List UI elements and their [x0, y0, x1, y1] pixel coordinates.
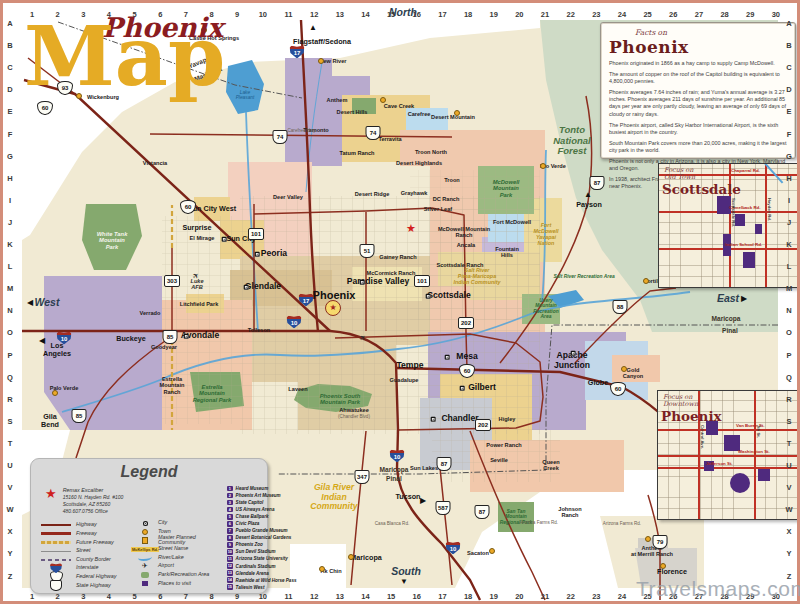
legend-line-items: HighwayFreewayFuture FreewayStreetCounty… — [41, 521, 133, 590]
legend-line-item: Future Freeway — [41, 538, 133, 547]
legend-label: Park/Recreation Area — [158, 572, 209, 578]
grid-col-label: 1 — [30, 10, 34, 19]
legend-place-item: 8Desert Botanical Gardens — [227, 534, 297, 541]
advertiser-line: 15160 N. Hayden Rd. #100 — [63, 494, 124, 501]
county-icon — [41, 559, 71, 561]
legend-label: Federal Highway — [76, 574, 116, 580]
legend-place-item: 11Arizona State University — [227, 555, 297, 562]
grid-col-label: 15 — [387, 592, 395, 601]
legend-places-list: 1Heard Museum2Phoenix Art Museum3State C… — [227, 485, 297, 591]
grid-col-label: 2 — [56, 592, 60, 601]
grid-row-label: C — [7, 63, 12, 72]
legend-place-item: 6Civic Plaza — [227, 520, 297, 527]
facts-script-heading: Facts on — [635, 28, 787, 37]
grid-row-label: L — [8, 262, 13, 271]
grid-col-label: 4 — [107, 592, 111, 601]
legend-line-item: Street — [41, 547, 133, 556]
airport-icon: ✈ — [137, 562, 153, 570]
places-icon — [137, 581, 153, 587]
grid-row-label: Q — [7, 372, 13, 381]
place-name: Rawhide at Wild Horse Pass — [236, 578, 297, 583]
grid-col-label: 20 — [515, 592, 523, 601]
legend-symbol-item: ✈Airport — [137, 562, 229, 571]
grid-col-label: 19 — [490, 592, 498, 601]
grid-row-label: L — [787, 262, 792, 271]
legend-box: Legend ★ Remax Excaliber 15160 N. Hayden… — [30, 458, 268, 594]
grid-row-label: W — [6, 505, 13, 514]
grid-col-label: 24 — [618, 10, 626, 19]
grid-row-label: F — [787, 129, 792, 138]
legend-place-item: 15Taliesin West — [227, 584, 297, 591]
grid-row-label: Y — [7, 549, 12, 558]
grid-col-label: 18 — [464, 592, 472, 601]
place-name: US Airways Arena — [236, 507, 275, 512]
place-number: 10 — [227, 549, 233, 555]
legend-label: Highway — [76, 522, 97, 528]
facts-paragraph: The amount of copper on the roof of the … — [609, 71, 787, 86]
advertiser-line: 480.607.0756 Office — [63, 508, 124, 515]
grid-row-label: T — [787, 438, 792, 447]
grid-col-label: 5 — [133, 592, 137, 601]
grid-row-label: D — [7, 85, 12, 94]
grid-col-label: 9 — [235, 592, 239, 601]
grid-col-label: 10 — [259, 592, 267, 601]
grid-col-label: 6 — [158, 592, 162, 601]
legend-symbol-item: Park/Recreation Area — [137, 571, 229, 580]
legend-symbol-item: City — [137, 519, 229, 528]
legend-label: Freeway — [76, 531, 97, 537]
advertiser-star-icon: ★ — [45, 487, 57, 515]
grid-row-label: Y — [786, 549, 791, 558]
grid-col-label: 18 — [464, 10, 472, 19]
advertiser-lines: 15160 N. Hayden Rd. #100Scottsdale, AZ 8… — [63, 494, 124, 514]
grid-row-label: J — [8, 217, 12, 226]
grid-col-label: 21 — [541, 10, 549, 19]
grid-row-label: X — [7, 527, 12, 536]
place-name: Desert Botanical Gardens — [236, 535, 292, 540]
phoenix-map-page: NorthSouthEastWest▼▶◀▲▲▲◀▶WickenburgCast… — [0, 0, 800, 604]
grid-col-label: 30 — [772, 10, 780, 19]
inset-scottsdale: Focus on Old Town Scottsdale Chaparral R… — [658, 163, 799, 288]
place-number: 3 — [227, 500, 233, 506]
grid-row-label: N — [786, 306, 791, 315]
grid-col-label: 3 — [81, 10, 85, 19]
grid-col-label: 6 — [158, 10, 162, 19]
place-name: Sun Devil Stadium — [236, 549, 276, 554]
inset-road-label: Scottsdale Rd. — [731, 198, 736, 227]
grid-col-label: 29 — [746, 10, 754, 19]
grid-col-label: 27 — [695, 10, 703, 19]
grid-row-label: O — [786, 328, 792, 337]
facts-heading: Phoenix — [609, 37, 787, 57]
grid-row-label: F — [8, 129, 13, 138]
legend-symbol-item: Places to visit — [137, 579, 229, 588]
inset-road-label: Indian School Rd. — [725, 242, 762, 247]
grid-row-label: K — [786, 240, 791, 249]
grid-row-label: C — [786, 63, 791, 72]
future-icon — [41, 541, 71, 544]
grid-row-label: I — [788, 195, 790, 204]
river-icon — [137, 554, 153, 561]
grid-row-label: T — [8, 438, 13, 447]
grid-row-label: R — [786, 394, 791, 403]
grid-col-label: 11 — [285, 592, 293, 601]
legend-place-item: 12Cardinals Stadium — [227, 563, 297, 570]
grid-row-label: D — [786, 85, 791, 94]
legend-symbol-item: McKellips Rd.Street Name — [137, 545, 229, 554]
watermark: Travelsmaps.com — [636, 577, 800, 601]
place-number: 4 — [227, 507, 233, 513]
inset-road-label: Chaparral Rd. — [731, 168, 760, 173]
legend-symbol-item: River/Lake — [137, 553, 229, 562]
grid-row-label: R — [7, 394, 12, 403]
legend-place-item: 1Heard Museum — [227, 485, 297, 492]
grid-col-label: 12 — [310, 592, 318, 601]
grid-row-label: Z — [8, 571, 13, 580]
legend-place-item: 10Sun Devil Stadium — [227, 548, 297, 555]
grid-row-label: H — [7, 173, 12, 182]
inset-road-label: Jefferson St. — [706, 461, 733, 466]
legend-label: Airport — [158, 563, 174, 569]
grid-row-label: V — [786, 483, 791, 492]
advertiser-text: Remax Excaliber 15160 N. Hayden Rd. #100… — [63, 487, 124, 515]
place-name: Taliesin West — [236, 585, 265, 590]
place-name: State Capitol — [236, 500, 264, 505]
inset-road — [658, 429, 798, 431]
grid-row-label: G — [7, 151, 13, 160]
inset-road-label: Washington St. — [738, 449, 770, 454]
mpc-icon — [137, 537, 153, 544]
advertiser-line: Scottsdale, AZ 85260 — [63, 501, 124, 508]
park-icon — [137, 572, 153, 578]
inset-road — [754, 391, 756, 519]
grid-row-label: H — [786, 173, 791, 182]
grid-col-label: 15 — [387, 10, 395, 19]
place-number: 6 — [227, 521, 233, 527]
inset-phoenix-title: Phoenix — [661, 408, 722, 424]
grid-row-label: S — [786, 416, 791, 425]
grid-col-label: 14 — [361, 592, 369, 601]
grid-col-label: 16 — [413, 10, 421, 19]
grid-col-label: 7 — [184, 10, 188, 19]
facts-paragraph: Phoenix averages 7.64 inches of rain; an… — [609, 89, 787, 118]
legend-place-item: 13Glendale Arena — [227, 570, 297, 577]
place-name: Cardinals Stadium — [236, 564, 276, 569]
place-number: 12 — [227, 563, 233, 569]
inset-road-label: Central Ave. — [700, 425, 705, 449]
place-number: 7 — [227, 528, 233, 534]
inset-road — [658, 467, 798, 469]
legend-line-item: Freeway — [41, 530, 133, 539]
place-number: 11 — [227, 556, 233, 562]
legend-label: River/Lake — [158, 555, 184, 561]
grid-col-label: 12 — [310, 10, 318, 19]
city-icon — [137, 521, 153, 526]
place-number: 9 — [227, 542, 233, 548]
inset-phoenix-script: Focus on Downtown — [663, 394, 698, 408]
grid-row-label: U — [786, 461, 791, 470]
grid-row-label: M — [786, 284, 792, 293]
grid-row-label: O — [7, 328, 13, 337]
grid-col-label: 9 — [235, 10, 239, 19]
place-name: Phoenix Zoo — [236, 542, 263, 547]
advertiser: ★ Remax Excaliber 15160 N. Hayden Rd. #1… — [45, 487, 145, 515]
legend-symbol-items: CityTownMaster Planned CommunityMcKellip… — [137, 519, 229, 588]
grid-col-label: 22 — [566, 592, 574, 601]
place-number: 15 — [227, 584, 233, 590]
legend-label: Places to visit — [158, 581, 191, 587]
grid-col-label: 25 — [643, 10, 651, 19]
inset-road — [765, 164, 767, 287]
grid-row-label: A — [786, 19, 791, 28]
grid-col-label: 3 — [81, 592, 85, 601]
grid-row-label: B — [786, 41, 791, 50]
grid-row-label: N — [7, 306, 12, 315]
legend-place-item: 3State Capitol — [227, 499, 297, 506]
place-number: 8 — [227, 535, 233, 541]
legend-line-item: Interstate — [41, 564, 133, 573]
place-number: 5 — [227, 514, 233, 520]
highway-icon — [41, 524, 71, 526]
inset-scottsdale-title: Scottsdale — [662, 181, 741, 197]
grid-col-label: 17 — [438, 592, 446, 601]
grid-row-label: E — [786, 107, 791, 116]
inset-road — [658, 455, 798, 457]
grid-row-label: Q — [786, 372, 792, 381]
grid-col-label: 5 — [133, 10, 137, 19]
grid-col-label: 21 — [541, 592, 549, 601]
inset-road-label: Hayden Rd. — [767, 198, 772, 221]
grid-row-label: U — [7, 461, 12, 470]
legend-place-item: 9Phoenix Zoo — [227, 541, 297, 548]
legend-label: Street Name — [158, 546, 188, 552]
street-icon — [41, 551, 71, 552]
place-number: 13 — [227, 570, 233, 576]
grid-col-label: 16 — [413, 592, 421, 601]
grid-row-label: W — [785, 505, 792, 514]
legend-place-item: 14Rawhide at Wild Horse Pass — [227, 577, 297, 584]
freeway-icon — [41, 532, 71, 535]
grid-row-label: B — [7, 41, 12, 50]
inset-scottsdale-script: Focus on Old Town — [664, 167, 695, 181]
grid-row-label: P — [7, 350, 12, 359]
place-number: 1 — [227, 486, 233, 492]
grid-col-label: 26 — [669, 10, 677, 19]
place-name: Civic Plaza — [236, 521, 260, 526]
grid-col-label: 24 — [618, 592, 626, 601]
grid-row-label: J — [787, 217, 791, 226]
state-icon — [41, 580, 71, 591]
grid-col-label: 8 — [209, 10, 213, 19]
grid-row-label: G — [786, 151, 792, 160]
place-name: Chase Ballpark — [236, 514, 269, 519]
grid-col-label: 19 — [490, 10, 498, 19]
legend-label: State Highway — [76, 583, 111, 589]
town-icon — [137, 529, 153, 536]
grid-col-label: 20 — [515, 10, 523, 19]
inset-phoenix: Focus on Downtown Phoenix Van Buren St.W… — [657, 390, 799, 520]
facts-paragraph: Phoenix originated in 1866 as a hay camp… — [609, 60, 787, 67]
facts-paragraph: South Mountain Park covers more than 20,… — [609, 140, 787, 155]
grid-col-label: 28 — [720, 10, 728, 19]
grid-row-label: P — [786, 350, 791, 359]
legend-place-item: 7Pueblo Grande Museum — [227, 527, 297, 534]
place-name: Phoenix Art Museum — [236, 493, 281, 498]
grid-row-label: A — [7, 19, 12, 28]
grid-col-label: 8 — [209, 592, 213, 601]
grid-col-label: 13 — [336, 592, 344, 601]
grid-row-label: E — [7, 107, 12, 116]
legend-symbol-item: Master Planned Community — [137, 536, 229, 545]
grid-col-label: 23 — [592, 592, 600, 601]
place-name: Heard Museum — [236, 486, 269, 491]
advertiser-name: Remax Excaliber — [63, 487, 124, 494]
facts-box: Facts on Phoenix Phoenix originated in 1… — [600, 22, 796, 159]
inset-road-label: 7th St. — [756, 425, 761, 438]
grid-col-label: 23 — [592, 10, 600, 19]
grid-col-label: 1 — [30, 592, 34, 601]
street-name-icon: McKellips Rd. — [137, 547, 153, 552]
grid-col-label: 22 — [566, 10, 574, 19]
place-name: Pueblo Grande Museum — [236, 528, 288, 533]
legend-line-item: Highway — [41, 521, 133, 530]
facts-paragraph: The Phoenix airport, called Sky Harbor I… — [609, 122, 787, 137]
place-name: Arizona State University — [236, 556, 288, 561]
legend-label: Interstate — [76, 565, 98, 571]
place-name: Glendale Arena — [236, 571, 269, 576]
grid-row-label: X — [786, 527, 791, 536]
grid-row-label: S — [7, 416, 12, 425]
grid-col-label: 7 — [184, 592, 188, 601]
legend-label: Future Freeway — [76, 540, 114, 546]
legend-label: City — [158, 520, 167, 526]
place-number: 2 — [227, 493, 233, 499]
grid-col-label: 10 — [259, 10, 267, 19]
title-map: Map — [24, 22, 225, 92]
grid-col-label: 17 — [438, 10, 446, 19]
grid-row-label: K — [7, 240, 12, 249]
legend-label: County Border — [76, 557, 111, 563]
legend-place-item: 4US Airways Arena — [227, 506, 297, 513]
grid-row-label: I — [9, 195, 11, 204]
grid-col-label: 13 — [336, 10, 344, 19]
grid-row-label: V — [7, 483, 12, 492]
grid-col-label: 2 — [56, 10, 60, 19]
grid-col-label: 4 — [107, 10, 111, 19]
legend-place-item: 2Phoenix Art Museum — [227, 492, 297, 499]
grid-row-label: M — [7, 284, 13, 293]
legend-place-item: 5Chase Ballpark — [227, 513, 297, 520]
place-number: 14 — [227, 577, 233, 583]
legend-label: Street — [76, 548, 90, 554]
legend-title: Legend — [37, 463, 261, 481]
grid-col-label: 11 — [285, 10, 293, 19]
grid-col-label: 14 — [361, 10, 369, 19]
legend-line-item: State Highway — [41, 581, 133, 590]
